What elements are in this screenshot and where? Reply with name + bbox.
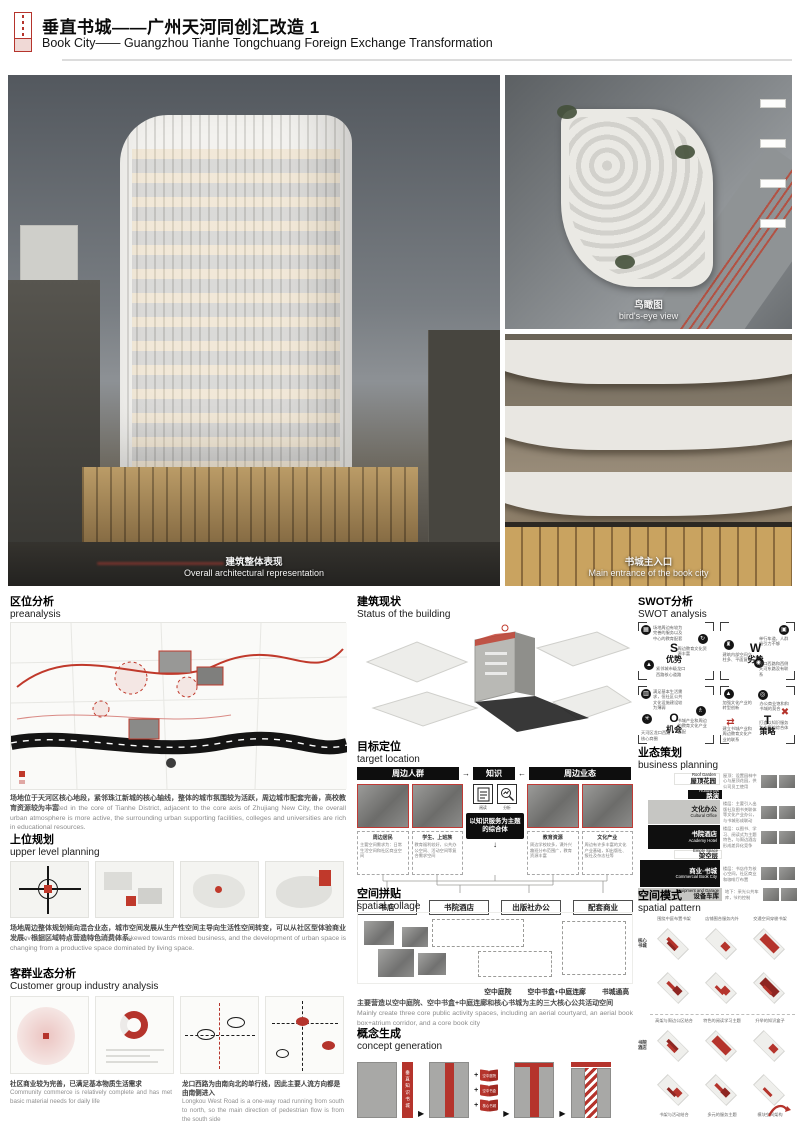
pattern-row: 核心书城 [650,922,795,966]
swot-title-en: SWOT analysis [638,609,707,621]
business-title-cn: 业态策划 [638,747,718,760]
bar-surrounding-business: 周边业态 [529,767,631,780]
roof-greenery [615,255,635,269]
section-pattern-title: 空间模式 spatial pattern [638,890,701,915]
main-render-image: 建筑整体表现 Overall architectural representat… [8,75,500,586]
group-desc: 教育福利较好，公共办公空间、活动空间等复合需求空间 [415,842,461,859]
pattern-cell [650,1068,698,1112]
plus-icon: + [474,1087,478,1094]
volume-with-core [429,1062,469,1118]
group-box: 教育资源 周边学校较多，课外兴趣班分布范围广，教育资源丰富 [527,831,579,875]
planning-map [10,861,89,918]
down-arrow-icon: ↓ [493,841,497,849]
concept-title-cn: 概念生成 [357,1028,442,1041]
pattern-cell [746,922,794,966]
step-arrow-icon: ▶ [559,1110,565,1118]
building-icon: ▦ [641,625,651,635]
book-icon: 核心书城 [480,1100,498,1111]
status-title-en: Status of the building [357,609,450,621]
customer-title-cn: 客群业态分析 [10,968,158,981]
section-collage-title: 空间拼贴 spatial collage [357,888,420,913]
preanalysis-title-cn: 区位分析 [10,596,61,609]
planning-map [95,861,174,918]
note-cn: 龙口西路为由南向北的单行线，因此主要人流方向都是由南侧进入 [182,1080,344,1098]
business-title-en: business planning [638,760,718,772]
upper-title-en: upper level planning [10,847,100,859]
collage-callout [562,921,626,975]
customer-note-left: 社区商业较为完善，已满足基本物质生活需求 Community commerce … [10,1080,172,1124]
pattern-cell [698,922,746,966]
level-photo [761,831,777,844]
group-title: 周边居民 [360,834,406,841]
pattern-title-cn: 空间模式 [638,890,701,903]
swot-note: 天河区龙口西路核心商圈 [641,730,674,741]
final-massing [571,1062,611,1118]
level-empty-space: Empty Space架空层 [638,850,795,859]
book-row: + 空中庭院 [474,1070,498,1081]
main-render-caption-cn: 建筑整体表现 [8,554,500,568]
step-arrow-icon: ▶ [503,1110,509,1118]
swot-word: 策略 [760,726,776,737]
group-box: 学生、上班族 教育福利较好，公共办公空间、活动空间等复合需求空间 [412,831,464,875]
group-residents: 周边居民 主要空间需求为：日常生活空间和社区商业空间 [357,784,409,875]
level-photo [779,831,795,844]
collage-text-en: Mainly create three core public activity… [357,1009,633,1028]
note-cn: 社区商业较为完善，已满足基本物质生活需求 [10,1080,172,1089]
swot-note: 场地周边有较为完善的服务以及中心的教育配套 [653,625,686,641]
swot-strengths: ▦ 场地周边有较为完善的服务以及中心的教育配套 ↻ 周边教育文化资源丰富 S优势… [638,622,714,680]
cycle-icon: ↻ [698,634,708,644]
section-customer-title: 客群业态分析 Customer group industry analysis [10,968,158,993]
pattern-divider [650,1014,795,1015]
adjacent-building [428,330,500,546]
left-arrow-icon: ← [518,770,526,778]
roof-greenery [557,105,577,119]
analysis-icon-label: 分析 [497,806,517,811]
swot-note: 满足基本生活需求，但社区公共文化设施建设较为薄弱 [653,689,686,711]
pattern-cell [746,966,794,1010]
level-desc: 地下：采光公共车库，节约控制 [725,889,761,900]
swot-note: 建筑内部空间立柱多、平面复杂 [723,652,756,663]
customer-diagram [265,996,344,1074]
swot-opportunities: ▥ 满足基本生活需求，但社区公共文化设施建设较为薄弱 ♗ 书城产业和周边的教育文… [638,686,714,744]
upper-title-cn: 上位规划 [10,834,100,847]
level-en: Academy Hotel [648,839,717,844]
book-city-tower [120,115,352,477]
collage-canvas [357,912,633,984]
group-box: 周边居民 主要空间需求为：日常生活空间和社区商业空间 [357,831,409,875]
level-photo [763,888,779,901]
level-cultural-office: 文化办公Cultural Office 楼层：主要引入出版社及图书关联体等文化产… [638,800,795,824]
planning-map [180,861,259,918]
level-desc: 屋顶：设置园林中心与屋顶花园，供公司员工使用 [723,773,759,789]
level-desc: 楼层：主要引入出版社及图书关联体等文化产业办公，与书城形成联动 [723,801,759,823]
target-title-en: target location [357,754,420,766]
cart-icon: ♗ [696,706,706,716]
preanalysis-title-en: preanalysis [10,609,61,621]
note-en: Longkou West Road is a one-way road runn… [182,1098,344,1124]
level-en: Cultural Office [648,814,717,819]
reading-icon-label: 阅读 [473,806,493,811]
target-groups: 周边居民 主要空间需求为：日常生活空间和社区商业空间 学生、上班族 教育福利较好… [357,784,633,875]
birdseye-render-image: 鸟瞰图 bird's-eye view [505,75,792,329]
group-education: 教育资源 周边学校较多，课外兴趣班分布范围广，教育资源丰富 [527,784,579,875]
plus-icon: + [474,1102,478,1109]
level-photo [761,775,777,788]
facility-icon: ▥ [641,689,651,699]
pattern-cell [650,966,698,1010]
bar-knowledge: 知识 [473,767,515,780]
customer-diagram [180,996,259,1074]
location-map-drawing [11,623,347,789]
status-axon-drawing [357,622,633,738]
section-preanalysis-title: 区位分析 preanalysis [10,596,61,621]
swot-note: 书城产业和周边的教育文化产业匹配 [678,718,711,734]
group-photo [582,784,634,828]
swot-letter: S [666,642,682,654]
business-stack-diagram: Roof Garden屋顶花园 屋顶：设置园林中心与屋顶花园，供公司员工使用 R… [638,773,795,902]
customer-diagram [10,996,89,1074]
group-photo [527,784,579,828]
up-arrow-icon: ▲ [724,689,734,699]
target-flow-bars: 周边人群 → 知识 ← 周边业态 [357,767,633,780]
level-photo [779,775,795,788]
entrance-caption-cn: 书城主入口 [505,554,792,568]
label-book-box-corridor: 空中书盒+中庭连廊 [527,986,585,996]
location-map [10,622,346,790]
swot-letter: O [666,712,682,724]
collage-title-en: spatial collage [357,901,420,913]
level-roadshow: Roadshow路演 [638,790,795,799]
curved-balcony [505,340,792,384]
bar-surrounding-people: 周边人群 [357,767,459,780]
group-desc: 主要空间需求为：日常生活空间和社区商业空间 [360,842,406,859]
group-title: 教育资源 [530,834,576,841]
presentation-board: 垂直书城——广州天河同创汇改造 1 Book City—— Guangzhou … [0,0,800,1132]
book-label: 空中庭院 [480,1070,498,1081]
core-theme-box: 以知识服务为主题的综合体 [466,813,524,839]
book-icon: 空中书盒 [480,1085,498,1096]
collage-text-cn: 主要营造以空中庭院、空中书盒+中庭连廊和核心书城为主的三大核心公共活动空间 [357,999,633,1009]
target-title-cn: 目标定位 [357,741,420,754]
annotation-label [760,179,786,188]
swot-letter: T [760,714,776,726]
existing-volume [357,1062,397,1118]
level-photo [781,888,797,901]
preanalysis-text-en: The site is located in the core of Tianh… [10,804,346,833]
group-photo [412,784,464,828]
group-desc: 周边学校较多，课外兴趣班分布范围广，教育资源丰富 [530,842,576,859]
section-upper-planning-title: 上位规划 upper level planning [10,834,100,859]
planning-map [265,861,344,918]
collage-callout [432,919,524,947]
swot-word: 优势 [666,654,682,665]
pattern-cell [746,1024,794,1068]
collage-photo [364,921,394,945]
curved-balcony [505,406,792,450]
level-en: Commercial Book City [640,875,717,880]
book-row: + 空中书盒 [474,1085,498,1096]
pattern-caption: 多元的服务主题 [698,1112,746,1118]
group-desc: 周边有许多丰富的文化产业基础，如出版社、报社及杂志社等 [585,842,631,859]
swot-note: 紧邻城市级龙口西路核心道路 [656,666,689,677]
pattern-row: 书院酒店 [650,1024,795,1068]
column-icon: ♜ [724,640,734,650]
analysis-icon [497,784,517,804]
pattern-cell [698,1068,746,1112]
right-arrow-icon: → [462,770,470,778]
collage-photo [378,949,414,977]
plus-icon: + [474,1072,478,1079]
swot-note: 单行车道，人群吸引力不够 [759,636,792,647]
collage-photo [418,953,446,975]
pattern-cell [650,922,698,966]
section-business-title: 业态策划 business planning [638,747,718,772]
collage-callout [478,951,552,977]
customer-notes: 社区商业较为完善，已满足基本物质生活需求 Community commerce … [10,1080,344,1124]
birdseye-caption-en: bird's-eye view [505,311,792,321]
level-desc: 楼层：书店作为核心空间，社区商业和咖啡厅布置 [723,866,759,882]
annotation-label [760,99,786,108]
level-photo [761,806,777,819]
status-title-cn: 建筑现状 [357,596,450,609]
strip-label: 垂直知识书城 [405,1070,411,1110]
red-squiggle-arrow-icon [767,1100,793,1120]
group-students: 学生、上班族 教育福利较好，公共办公空间、活动空间等复合需求空间 [412,784,464,875]
section-target-title: 目标定位 target location [357,741,420,766]
level-photo [761,867,777,880]
book-insertions: + 空中庭院 + 空中书盒 + 核心书城 [474,1062,498,1118]
pattern-cell [650,1024,698,1068]
upper-text-en: The overall planning around the site is … [10,934,346,953]
header-divider [62,59,792,61]
level-roof-garden: Roof Garden屋顶花园 屋顶：设置园林中心与屋顶花园，供公司员工使用 [638,773,795,789]
spatial-pattern-grid: 围绕中庭布置书架 店铺围合服务内外 交通空间穿梭书架 核心书城 高架与周边公区结… [638,916,795,1118]
group-title: 学生、上班族 [415,834,461,841]
section-concept-title: 概念生成 concept generation [357,1028,442,1053]
swot-quadrants: ▦ 场地周边有较为完善的服务以及中心的教育配套 ↻ 周边教育文化资源丰富 S优势… [638,622,795,744]
knowledge-center-column: 阅读 分析 以知识服务为主题的综合体 ↓ [466,784,524,875]
book-label: 空中书盒 [480,1085,498,1096]
customer-title-en: Customer group industry analysis [10,981,158,993]
level-cn: 屋顶花园 [675,778,716,785]
pattern-cell [698,1024,746,1068]
concept-title-en: concept generation [357,1041,442,1053]
customer-note-right: 龙口西路为由南向北的单行线，因此主要人流方向都是由南侧进入 Longkou We… [182,1080,344,1124]
pattern-row [650,966,795,1010]
annotation-label [760,139,786,148]
label-book-city-atrium: 书城通高 [602,986,629,996]
road-icon: ▲ [644,660,654,670]
level-academy-hotel: 书院酒店Academy Hotel 楼层：以图书、学习、阅读式为主题特色，与周边… [638,825,795,849]
group-culture: 文化产业 周边有许多丰富的文化产业基础，如出版社、报社及杂志社等 [582,784,634,875]
note-en: Community commerce is relatively complet… [10,1089,172,1106]
section-status-title: 建筑现状 Status of the building [357,596,450,621]
logo-podium [14,39,32,52]
label-aerial-courtyard: 空中庭院 [484,986,511,996]
book-label: 核心书城 [480,1100,498,1111]
bus-icon: ▣ [779,625,789,635]
swot-note: 龙口西路和西侧天河东路没有联系 [759,661,792,677]
swot-note: 建立书城产业和周边教育文化产业的联系 [723,726,756,742]
pattern-caption: 书架与活动结合 [650,1112,698,1118]
roof-greenery [675,145,695,159]
birdseye-building [561,109,713,287]
atom-icon: ✳ [642,714,652,724]
group-title: 文化产业 [585,834,631,841]
group-photo [357,784,409,828]
spatial-collage: 空中庭院 空中书盒+中庭连廊 书城通高 主要营造以空中庭院、空中书盒+中庭连廊和… [357,912,633,1028]
main-render-caption-en: Overall architectural representation [8,568,500,578]
birdseye-caption-cn: 鸟瞰图 [505,297,792,311]
reading-icon [473,784,493,804]
swot-note: 周边教育文化资源丰富 [678,646,711,657]
swot-note: 加强文化产业的转型创新 [723,700,756,711]
book-icon: 空中庭院 [480,1070,498,1081]
page-subtitle: Book City—— Guangzhou Tianhe Tongchuang … [42,36,493,50]
book-city-logo-icon [14,12,32,54]
coins-icon: ◎ [758,690,768,700]
level-photo [779,806,795,819]
entrance-caption-en: Main entrance of the book city [505,568,792,578]
customer-diagrams [10,996,344,1074]
section-swot-title: SWOT分析 SWOT analysis [638,596,707,621]
customer-diagram [95,996,174,1074]
annotation-label [760,219,786,228]
collage-photo [402,927,428,947]
entrance-render-image: 书城主入口 Main entrance of the book city [505,334,792,586]
swot-strategies: ▲ 加强文化产业的转型创新 ◎ 办公商业饱和和书城的契合 ✖ 打造以知识服务为主… [720,686,796,744]
level-commercial-book-city: 商业·书城Commercial Book City 楼层：书店作为核心空间，社区… [638,860,795,887]
curved-balcony [505,472,792,516]
step-arrow-icon: ▶ [418,1110,424,1118]
upper-planning-maps [10,861,344,918]
collage-title-cn: 空间拼贴 [357,888,420,901]
knowledge-axis-strip: 垂直知识书城 [402,1062,413,1118]
swot-title-cn: SWOT分析 [638,596,707,609]
volume-with-books [514,1062,554,1118]
level-photo [779,867,795,880]
book-row: + 核心书城 [474,1100,498,1111]
cross-icon: ✖ [780,708,790,718]
level-desc: 楼层：以图书、学习、阅读式为主题特色，与周边酒店形成差异化竞争 [723,826,759,848]
swot-weaknesses: ▣ 单行车道，人群吸引力不够 W劣势 ♜ 建筑内部空间立柱多、平面复杂 ◉ 龙口… [720,622,796,680]
pattern-title-en: spatial pattern [638,903,701,915]
group-box: 文化产业 周边有许多丰富的文化产业基础，如出版社、报社及杂志社等 [582,831,634,875]
logo-tower [14,12,32,39]
page-title: 垂直书城——广州天河同创汇改造 1 [42,13,320,38]
collage-labels: 空中庭院 空中书盒+中庭连廊 书城通高 [357,986,633,996]
pattern-cell [698,966,746,1010]
concept-diagram: 垂直知识书城 ▶ + 空中庭院 + 空中书盒 + 核心书城 ▶ ▶ [357,1052,633,1118]
